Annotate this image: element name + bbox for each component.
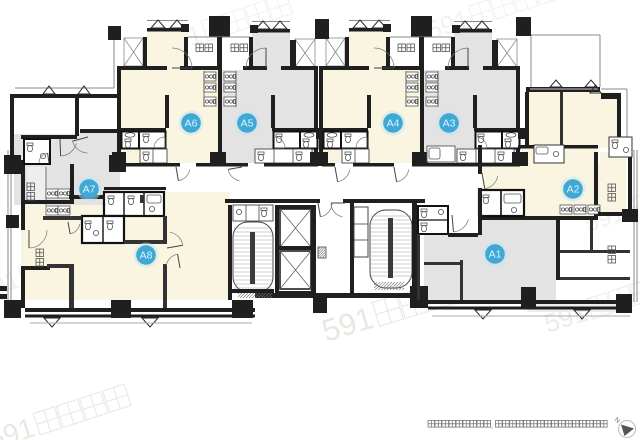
svg-text:A8: A8 [140, 250, 153, 262]
svg-text:A2: A2 [567, 184, 580, 196]
svg-text:A4: A4 [387, 118, 400, 130]
svg-text:A3: A3 [443, 118, 456, 130]
svg-text:A6: A6 [185, 118, 198, 130]
svg-text:,: , [491, 423, 493, 430]
svg-text:A7: A7 [83, 184, 96, 196]
svg-text:A1: A1 [489, 249, 502, 261]
svg-text:A5: A5 [241, 118, 254, 130]
